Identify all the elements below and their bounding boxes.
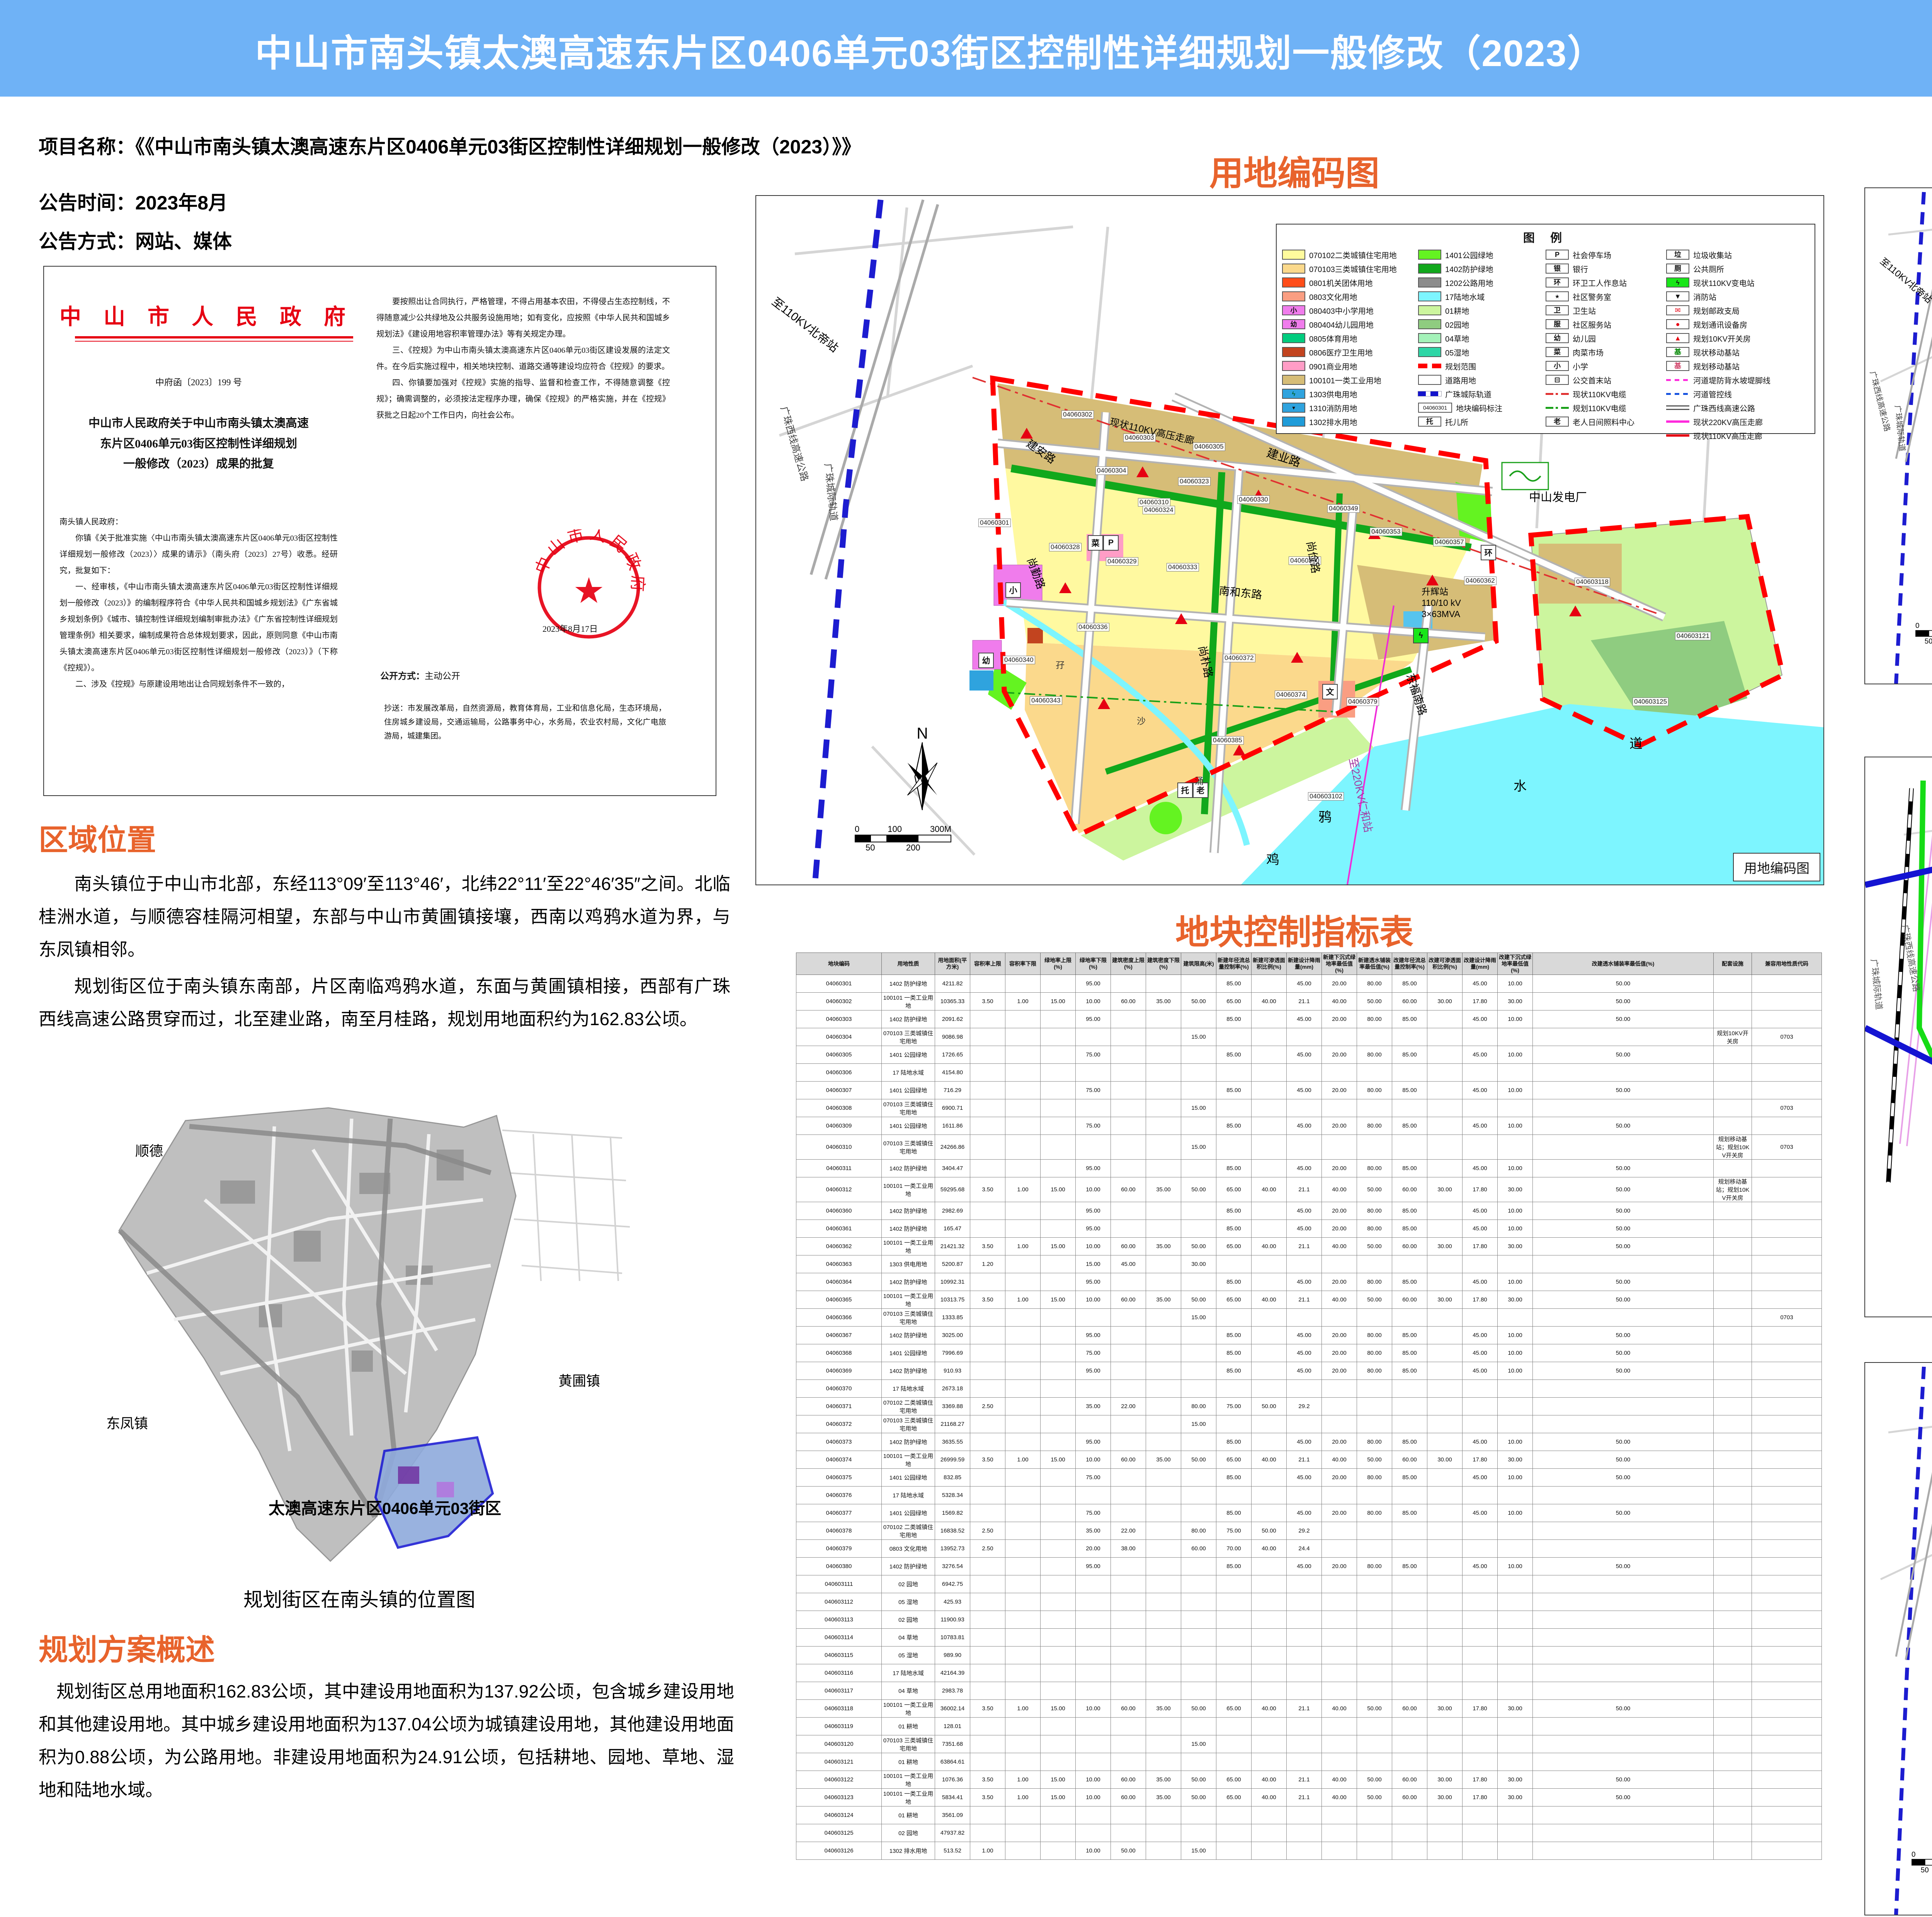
control-table-header-cell: 用地面积(平方米) [935, 953, 970, 975]
legend-label: 05湿地 [1445, 347, 1469, 358]
legend-label: 公交首末站 [1573, 374, 1611, 386]
document-paragraph: 你镇《关于批准实施〈中山市南头镇太澳高速东片区0406单元03街区控制性详细规划… [60, 530, 338, 579]
region-paragraph-2: 规划街区位于南头镇东南部，片区南临鸡鸦水道，东面与黄圃镇相接，西部有广珠西线高速… [39, 970, 730, 1036]
legend-label: 17陆地水域 [1445, 291, 1485, 302]
coding-map-panel: 0406030104060302040603030406030404060305… [755, 195, 1824, 885]
legend-glyph-icon: 菜 [1554, 349, 1561, 356]
legend-swatch [1666, 420, 1689, 423]
legend-swatch: 卫 [1546, 305, 1569, 315]
table-row: 04060366070103 三类城镇住宅用地1333.85 15.00 070… [796, 1309, 1822, 1327]
control-table-header-cell: 改建透水铺装率最低值(%) [1533, 953, 1714, 975]
legend-item: 0801机关团体用地 [1282, 276, 1418, 289]
legend-label: 社区警务室 [1573, 291, 1611, 302]
document-title-line3: 一般修改（2023）成果的批复 [60, 454, 338, 475]
svg-text:★: ★ [573, 571, 605, 611]
letterhead-rule [75, 336, 353, 338]
table-row: 04060304070103 三类城镇住宅用地9086.98 15.00 规划1… [796, 1028, 1822, 1046]
control-table-header-cell: 改建年径流总量控制率(%) [1392, 953, 1427, 975]
legend-label: 1202公路用地 [1445, 277, 1493, 288]
legend-glyph-icon: 老 [1554, 418, 1561, 425]
legend-item: 1401公园绿地 [1418, 248, 1546, 262]
legend-label: 规划10KV开关房 [1693, 333, 1751, 344]
legend-label: 现状220KV高压走廊 [1693, 416, 1763, 427]
legend-swatch: 幼 [1282, 319, 1305, 329]
document-letterhead: 中 山 市 人 民 政 府 [60, 299, 338, 331]
table-row: 040603681401 公园绿地7996.69 75.00 85.0045.0… [796, 1344, 1822, 1362]
location-map-caption: 规划街区在南头镇的位置图 [58, 1584, 661, 1612]
document-title-line2: 东片区0406单元03街区控制性详细规划 [60, 434, 338, 454]
services-map-graphic [1865, 1363, 1932, 1915]
legend-item: 小080403中小学用地 [1282, 303, 1418, 317]
document-paragraph: 一、经审核，《中山市南头镇太澳高速东片区0406单元03街区控制性详细规划一般修… [60, 579, 338, 676]
table-row: 04060374100101 一类工业用地26999.593.501.00 15… [796, 1451, 1822, 1469]
legend-item: 1202公路用地 [1418, 276, 1546, 289]
table-row: 0406031261302 排水用地513.521.00 10.0050.001… [796, 1842, 1822, 1860]
legend-glyph-icon: 厕 [1674, 265, 1681, 272]
road-map-graphic [1865, 757, 1932, 1317]
legend-swatch [1282, 291, 1305, 301]
legend-item: 04草地 [1418, 331, 1546, 345]
legend-glyph-icon: ✉ [1675, 307, 1680, 314]
legend-label: 04草地 [1445, 333, 1469, 344]
legend-swatch [1282, 333, 1305, 343]
legend-label: 现状110KV电缆 [1573, 388, 1626, 400]
legend-label: 卫生站 [1573, 305, 1596, 316]
legend-label: 规划110KV电缆 [1573, 402, 1626, 413]
control-table-header-cell: 绿地率下限(%) [1076, 953, 1111, 975]
legend-swatch [1282, 264, 1305, 274]
legend-label: 社会停车场 [1573, 249, 1611, 260]
coding-map-title: 用地编码图 [927, 146, 1662, 195]
table-row: 04060311302 园地11900.93 [796, 1611, 1822, 1629]
legend-glyph-icon: 小 [1291, 307, 1297, 314]
table-row: 040603051401 公园绿地1726.65 75.00 85.0045.0… [796, 1046, 1822, 1064]
legend-swatch: ▼ [1666, 291, 1689, 301]
table-row: 04060378070102 二类城镇住宅用地16838.522.50 35.0… [796, 1522, 1822, 1540]
location-map-graphic [58, 1103, 661, 1584]
document-body-left: 南头镇人民政府： 你镇《关于批准实施〈中山市南头镇太澳高速东片区0406单元03… [60, 514, 338, 692]
legend-label: 幼儿园 [1573, 333, 1596, 344]
legend-swatch [1418, 375, 1441, 385]
legend-swatch [1546, 407, 1569, 409]
legend-item: 幼幼儿园 [1546, 331, 1666, 345]
table-row: 040603631303 供电用地5200.871.20 15.0045.003… [796, 1255, 1822, 1273]
legend-item: 小小学 [1546, 359, 1666, 373]
legend-label: 01耕地 [1445, 305, 1469, 316]
table-row: 040603601402 防护绿地2982.69 95.00 85.0045.0… [796, 1202, 1822, 1220]
legend-swatch: 04060301 [1418, 403, 1452, 413]
legend-label: 070102二类城镇住宅用地 [1309, 249, 1397, 260]
section-heading-overview: 规划方案概述 [39, 1626, 215, 1669]
open-mode-value: 主动公开 [425, 671, 460, 681]
table-row: 04060311505 湿地989.90 [796, 1647, 1822, 1664]
control-table-header-cell: 兼容用地性质代码 [1752, 953, 1822, 975]
legend-item: 老老人日间照料中心 [1546, 415, 1666, 429]
control-table-header-row: 地块编码用地性质用地面积(平方米)容积率上限容积率下限绿地率上限(%)绿地率下限… [796, 953, 1822, 975]
control-table-header-cell: 新建可渗透面积比例(%) [1252, 953, 1287, 975]
legend-item: ★社区警务室 [1546, 289, 1666, 303]
legend-item: ⊟公交首末站 [1546, 373, 1666, 387]
document-title: 中山市人民政府关于中山市南头镇太澳高速 东片区0406单元03街区控制性详细规划… [60, 413, 338, 475]
legend-swatch: ✉ [1666, 305, 1689, 315]
legend-item: 广珠西线高速公路 [1666, 401, 1805, 415]
legend-swatch: 环 [1546, 277, 1569, 287]
legend-glyph-icon: 幼 [1554, 335, 1561, 342]
control-table-header-cell: 容积率上限 [970, 953, 1005, 975]
table-row: 04060362100101 一类工业用地21421.323.501.00 15… [796, 1238, 1822, 1255]
legend-label: 肉菜市场 [1573, 347, 1604, 358]
legend-item: 卫卫生站 [1546, 303, 1666, 317]
table-row: 040603091401 公园绿地1611.86 75.00 85.0045.0… [796, 1117, 1822, 1135]
legend-label: 广珠城际轨道 [1445, 388, 1492, 400]
document-right-page: 要按照出让合同执行，严格管理，不得占用基本农田，不得侵占生态控制线，不得随意减少… [376, 267, 670, 795]
legend-label: 现状移动基站 [1693, 347, 1740, 358]
legend-item: 规划110KV电缆 [1546, 401, 1666, 415]
plot-control-table: 地块编码用地性质用地面积(平方米)容积率上限容积率下限绿地率上限(%)绿地率下限… [796, 953, 1822, 1860]
table-row: 04060311205 湿地425.93 [796, 1593, 1822, 1611]
legend-item: 规划范围 [1418, 359, 1546, 373]
legend-swatch: P [1546, 250, 1569, 260]
legend-item: ▲规划10KV开关房 [1666, 331, 1805, 345]
table-row: 04060302100101 一类工业用地10365.333.501.00 15… [796, 993, 1822, 1010]
page-title: 中山市南头镇太澳高速东片区0406单元03街区控制性详细规划一般修改（2023） [255, 23, 1605, 77]
legend-item: 01耕地 [1418, 303, 1546, 317]
landuse-map-panel: 图 例 070102二类城镇住宅用地070103三类城镇住宅用地0801机关团体… [1864, 187, 1932, 684]
legend-swatch [1282, 417, 1305, 427]
legend-glyph-icon: 幼 [1291, 321, 1297, 328]
legend-glyph-icon: ● [1676, 321, 1680, 328]
legend-swatch: 托 [1418, 417, 1441, 427]
meta-announce-method: 公告方式：网站、媒体 [39, 226, 232, 254]
legend-swatch: 银 [1546, 264, 1569, 274]
control-table-header-cell: 地块编码 [796, 953, 882, 975]
table-row: 040603751401 公园绿地832.85 75.00 85.0045.00… [796, 1469, 1822, 1487]
control-table-header-cell: 建筑密度下限(%) [1146, 953, 1181, 975]
legend-item: 0803文化用地 [1282, 289, 1418, 303]
table-row: 040603071401 公园绿地716.29 75.00 85.0045.00… [796, 1082, 1822, 1099]
legend-item: 河道管控线 [1666, 387, 1805, 401]
legend-item: 17陆地水域 [1418, 289, 1546, 303]
table-row: 040603771401 公园绿地1569.82 75.00 85.0045.0… [796, 1504, 1822, 1522]
legend-swatch: ϟ [1282, 389, 1305, 399]
legend-item: 070102二类城镇住宅用地 [1282, 248, 1418, 262]
scale-bar: 0100300M 50200 [1915, 621, 1932, 646]
legend-item: 0806医疗卫生用地 [1282, 345, 1418, 359]
table-row: 040603120070103 三类城镇住宅用地7351.68 15.00 [796, 1735, 1822, 1753]
legend-label: 广珠西线高速公路 [1693, 402, 1755, 413]
legend-item: 0805体育用地 [1282, 331, 1418, 345]
legend-label: 080403中小学用地 [1309, 305, 1374, 316]
legend-label: 小学 [1573, 361, 1588, 372]
legend-item: 0901商业用地 [1282, 359, 1418, 373]
legend-glyph-icon: 卫 [1554, 307, 1561, 314]
legend-swatch: ▼ [1282, 403, 1305, 413]
table-row: 040603123100101 一类工业用地5834.413.501.00 15… [796, 1789, 1822, 1806]
legend-glyph-icon: ★ [1555, 294, 1560, 299]
legend-item: 菜肉菜市场 [1546, 345, 1666, 359]
legend-swatch: 幼 [1546, 333, 1569, 343]
legend-swatch: 垃 [1666, 250, 1689, 260]
legend-item: 现状110KV高压走廊 [1666, 429, 1805, 442]
legend-label: 1302排水用地 [1309, 416, 1357, 427]
legend-label: 河道堤防背水坡堤脚线 [1693, 374, 1770, 386]
table-row: 040603031402 防护绿地2091.62 95.00 85.0045.0… [796, 1010, 1822, 1028]
meta-project-name: 项目名称：《《中山市南头镇太澳高速东片区0406单元03街区控制性详细规划一般修… [39, 131, 861, 159]
control-table-title: 地块控制指标表 [927, 905, 1662, 954]
legend-title: 图 例 [1277, 225, 1815, 246]
legend-label: 现状110KV变电站 [1693, 277, 1755, 288]
legend-item: 1402防护绿地 [1418, 262, 1546, 276]
table-row: 04060311617 陆地水域42164.39 [796, 1664, 1822, 1682]
legend-label: 银行 [1573, 263, 1588, 274]
legend-glyph-icon: 银 [1554, 265, 1561, 272]
legend-column-4: 垃垃圾收集站厕公共厕所ϟ现状110KV变电站▼消防站✉规划邮政支局●规划通讯设备… [1666, 248, 1805, 442]
table-row: 040603641402 防护绿地10992.31 95.00 85.0045.… [796, 1273, 1822, 1291]
legend-item: 托托儿所 [1418, 415, 1546, 429]
legend-label: 070103三类城镇住宅用地 [1309, 263, 1397, 274]
table-row: 0406037617 陆地水域5328.34 [796, 1487, 1822, 1504]
legend-item: 道路用地 [1418, 373, 1546, 387]
legend-item: ✉规划邮政支局 [1666, 303, 1805, 317]
table-row: 040603122100101 一类工业用地1076.363.501.00 15… [796, 1771, 1822, 1789]
legend-item: 04060301地块编码标注 [1418, 401, 1546, 415]
legend-item: 现状110KV电缆 [1546, 387, 1666, 401]
document-date: 2023年8月17日 [543, 622, 598, 634]
letterhead-rule-thin [75, 341, 353, 342]
legend-label: 垃圾收集站 [1693, 249, 1732, 260]
table-row: 04060372070103 三类城镇住宅用地21168.27 15.00 [796, 1415, 1822, 1433]
table-row: 040603011402 防护绿地4211.82 95.00 85.0045.0… [796, 975, 1822, 993]
control-table-header-cell: 容积率下限 [1005, 953, 1041, 975]
legend-item: ϟ现状110KV变电站 [1666, 276, 1805, 289]
legend-label: 环卫工人作息站 [1573, 277, 1627, 288]
legend-label: 1310消防用地 [1309, 402, 1357, 413]
legend-item: ▼1310消防用地 [1282, 401, 1418, 415]
legend-swatch: ⊟ [1546, 375, 1569, 385]
legend-glyph-icon: ⊟ [1554, 376, 1560, 383]
legend-glyph-icon: P [1555, 251, 1560, 258]
document-cc: 抄送：市发展改革局，自然资源局，教育体育局，工业和信息化局，生态环境局，住房城乡… [384, 701, 666, 743]
legend-glyph-icon: 环 [1554, 279, 1561, 286]
control-table-wrap: 地块编码用地性质用地面积(平方米)容积率上限容积率下限绿地率上限(%)绿地率下限… [796, 953, 1822, 1860]
north-arrow: N [899, 725, 946, 816]
legend-swatch [1666, 379, 1689, 381]
overview-text: 规划街区总用地面积162.83公顷，其中建设用地面积为137.92公顷，包含城乡… [39, 1675, 734, 1810]
legend-swatch: ϟ [1666, 277, 1689, 287]
legend-swatch [1418, 364, 1441, 368]
official-document: 中 山 市 人 民 政 府 中府函〔2023〕199 号 中山市人民政府关于中山… [43, 266, 716, 796]
control-table-header-cell: 绿地率上限(%) [1041, 953, 1076, 975]
table-row: 040603691402 防护绿地910.93 95.00 85.0045.00… [796, 1362, 1822, 1380]
legend-swatch [1282, 277, 1305, 287]
services-map-panel: 其他用地 图 例 070102二类城镇住宅用地070103三类城镇住宅用地080… [1864, 1362, 1932, 1915]
legend-swatch: 基 [1666, 361, 1689, 371]
legend-column-1: 070102二类城镇住宅用地070103三类城镇住宅用地0801机关团体用地08… [1282, 248, 1418, 442]
legend-swatch [1418, 391, 1441, 396]
table-row: 04060312101 耕地63864.61 [796, 1753, 1822, 1771]
svg-text:N: N [917, 725, 928, 742]
legend-swatch: 厕 [1666, 264, 1689, 274]
legend-glyph-icon: ▲ [1674, 335, 1681, 342]
legend-swatch [1418, 319, 1441, 329]
control-table-header-cell: 改建可渗透面积比例(%) [1427, 953, 1463, 975]
meta-announce-time: 公告时间：2023年8月 [39, 187, 228, 215]
legend-label: 现状110KV高压走廊 [1693, 430, 1762, 441]
legend-swatch [1418, 305, 1441, 315]
table-row: 04060310070103 三类城镇住宅用地24266.86 15.00 规划… [796, 1135, 1822, 1160]
control-table-header-cell: 新建设计降雨量(mm) [1287, 953, 1322, 975]
legend-label: 0803文化用地 [1309, 291, 1357, 302]
legend-item: 银银行 [1546, 262, 1666, 276]
legend-item: 环环卫工人作息站 [1546, 276, 1666, 289]
legend-glyph-icon: 基 [1674, 362, 1681, 369]
legend-label: 080404幼儿园用地 [1309, 319, 1374, 330]
table-row: 040603671402 防护绿地3025.00 95.00 85.0045.0… [796, 1327, 1822, 1344]
legend-glyph-icon: 04060301 [1423, 405, 1447, 410]
legend-item: 广珠城际轨道 [1418, 387, 1546, 401]
legend-swatch [1282, 375, 1305, 385]
control-table-header-cell: 改建设计降雨量(mm) [1463, 953, 1498, 975]
table-row: 04060308070103 三类城镇住宅用地6900.71 15.00 070… [796, 1099, 1822, 1117]
legend-swatch: 基 [1666, 347, 1689, 357]
coding-map-corner-label: 用地编码图 [1733, 853, 1820, 881]
control-table-header-cell: 改建下沉式绿地率最低值(%) [1498, 953, 1533, 975]
table-row: 040603118100101 一类工业用地36002.143.501.00 1… [796, 1700, 1822, 1718]
legend-label: 老人日间照料中心 [1573, 416, 1634, 427]
document-left-page: 中 山 市 人 民 政 府 中府函〔2023〕199 号 中山市人民政府关于中山… [60, 267, 338, 795]
legend-swatch [1282, 347, 1305, 357]
legend-swatch [1418, 333, 1441, 343]
table-row: 040603801402 防护绿地3276.54 95.00 85.0045.0… [796, 1558, 1822, 1575]
corner-title: 用地编码图 [1734, 858, 1820, 877]
table-row: 04060365100101 一类工业用地10313.753.501.00 15… [796, 1291, 1822, 1309]
table-row: 04060312401 耕地3561.09 [796, 1806, 1822, 1824]
legend-item: 基规划移动基站 [1666, 359, 1805, 373]
location-map: 顺德东凤镇黄圃镇太澳高速东片区0406单元03街区 [58, 1103, 661, 1584]
table-row: 04060311704 草地2983.78 [796, 1682, 1822, 1700]
legend-glyph-icon: 基 [1674, 349, 1681, 356]
legend-swatch: 小 [1546, 361, 1569, 371]
legend-swatch [1418, 277, 1441, 287]
legend-glyph-icon: ϟ [1676, 279, 1680, 286]
legend-label: 公共厕所 [1693, 263, 1724, 274]
legend-label: 1402防护绿地 [1445, 263, 1493, 274]
region-text: 南头镇位于中山市北部，东经113°09′至113°46′，北纬22°11′至22… [39, 867, 730, 1039]
legend-label: 0806医疗卫生用地 [1309, 347, 1373, 358]
control-table-header-cell: 新建透水铺装率最低值(%) [1357, 953, 1392, 975]
legend-label: 02园地 [1445, 319, 1469, 330]
legend-label: 消防站 [1693, 291, 1716, 302]
legend-item: 070103三类城镇住宅用地 [1282, 262, 1418, 276]
legend-item: 垃垃圾收集站 [1666, 248, 1805, 262]
table-row: 040603731402 防护绿地3635.55 95.00 85.0045.0… [796, 1433, 1822, 1451]
legend-swatch: 服 [1546, 319, 1569, 329]
coding-map-legend: 图 例 070102二类城镇住宅用地070103三类城镇住宅用地0801机关团体… [1276, 224, 1815, 434]
legend-glyph-icon: ϟ [1292, 391, 1296, 397]
scale-bar: 0100300M 50200 [855, 824, 951, 853]
legend-label: 河道管控线 [1693, 388, 1732, 400]
legend-swatch [1418, 347, 1441, 357]
document-number: 中府函〔2023〕199 号 [60, 375, 338, 388]
table-row: 04060311404 草地10783.81 [796, 1629, 1822, 1647]
control-table-header-cell: 新建年径流总量控制率(%) [1216, 953, 1252, 975]
legend-swatch: 小 [1282, 305, 1305, 315]
legend-item: ϟ1303供电用地 [1282, 387, 1418, 401]
legend-item: 现状220KV高压走廊 [1666, 415, 1805, 429]
legend-swatch [1418, 250, 1441, 260]
header-bar: 中山市南头镇太澳高速东片区0406单元03街区控制性详细规划一般修改（2023）… [0, 0, 1932, 97]
document-paragraph: 二、涉及《控规》与原建设用地出让合同规划条件不一致的， [60, 676, 338, 692]
legend-label: 规划范围 [1445, 361, 1476, 372]
scale-bar: 0100300M 50200 [1912, 1850, 1932, 1874]
control-table-header-cell: 用地性质 [882, 953, 935, 975]
legend-item: P社会停车场 [1546, 248, 1666, 262]
legend-label: 托儿所 [1445, 416, 1468, 427]
legend-column-2: 1401公园绿地1402防护绿地1202公路用地17陆地水域01耕地02园地04… [1418, 248, 1546, 442]
legend-swatch: ▲ [1666, 333, 1689, 343]
legend-label: 1401公园绿地 [1445, 249, 1493, 260]
document-paragraph: 三、《控规》为中山市南头镇太澳高速东片区0406单元03街区建设发展的法定文件。… [376, 342, 670, 375]
legend-glyph-icon: ▼ [1674, 293, 1681, 300]
control-table-body: 040603011402 防护绿地4211.82 95.00 85.0045.0… [796, 975, 1822, 1860]
legend-label: 0801机关团体用地 [1309, 277, 1373, 288]
document-paragraph: 四、你镇要加强对《控规》实施的指导、监督和检查工作，不得随意调整《控规》；确需调… [376, 375, 670, 424]
control-table-header-cell: 建筑限高(米) [1181, 953, 1216, 975]
legend-label: 道路用地 [1445, 374, 1476, 386]
legend-glyph-icon: 小 [1554, 362, 1561, 369]
legend-swatch: 老 [1546, 417, 1569, 427]
legend-swatch: ● [1666, 319, 1689, 329]
legend-swatch: 菜 [1546, 347, 1569, 357]
legend-item: 1302排水用地 [1282, 415, 1418, 429]
legend-swatch [1282, 250, 1305, 260]
legend-swatch [1666, 393, 1689, 395]
legend-item: 基现状移动基站 [1666, 345, 1805, 359]
open-mode-label: 公开方式： [380, 671, 425, 681]
table-row: 04060311901 耕地128.01 [796, 1718, 1822, 1735]
legend-column-3: P社会停车场银银行环环卫工人作息站★社区警务室卫卫生站服社区服务站幼幼儿园菜肉菜… [1546, 248, 1666, 442]
legend-swatch [1418, 291, 1441, 301]
legend-item: 厕公共厕所 [1666, 262, 1805, 276]
legend-item: ▼消防站 [1666, 289, 1805, 303]
table-row: 04060312100101 一类工业用地59295.683.501.00 15… [796, 1177, 1822, 1202]
legend-label: 地块编码标注 [1456, 402, 1502, 413]
legend-glyph-icon: ▼ [1291, 405, 1296, 410]
table-row: 04060312502 园地47937.82 [796, 1824, 1822, 1842]
table-row: 04060311102 园地6942.75 [796, 1575, 1822, 1593]
legend-label: 规划邮政支局 [1693, 305, 1740, 316]
table-row: 040603611402 防护绿地165.47 95.00 85.0045.00… [796, 1220, 1822, 1238]
legend-label: 0901商业用地 [1309, 361, 1357, 372]
table-row: 040603111402 防护绿地3404.47 95.00 85.0045.0… [796, 1160, 1822, 1177]
legend-label: 规划移动基站 [1693, 361, 1740, 372]
table-row: 040603790803 文化用地13952.732.50 20.0038.00… [796, 1540, 1822, 1558]
legend-swatch [1418, 264, 1441, 274]
legend-label: 0805体育用地 [1309, 333, 1357, 344]
table-row: 04060371070102 二类城镇住宅用地3369.882.50 35.00… [796, 1398, 1822, 1415]
table-row: 0406037017 陆地水域2673.18 [796, 1380, 1822, 1398]
document-open-mode: 公开方式：主动公开 [380, 668, 460, 682]
section-heading-region: 区域位置 [39, 816, 156, 859]
legend-item: 100101一类工业用地 [1282, 373, 1418, 387]
legend-item: ●规划通讯设备房 [1666, 317, 1805, 331]
legend-glyph-icon: 托 [1426, 418, 1433, 425]
region-paragraph-1: 南头镇位于中山市北部，东经113°09′至113°46′，北纬22°11′至22… [39, 867, 730, 966]
legend-glyph-icon: 服 [1554, 321, 1561, 328]
document-paragraph: 要按照出让合同执行，严格管理，不得占用基本农田，不得侵占生态控制线，不得随意减少… [376, 294, 670, 342]
control-table-header-cell: 新建下沉式绿地率最低值(%) [1322, 953, 1357, 975]
table-row: 0406030617 陆地水域4154.80 [796, 1064, 1822, 1082]
